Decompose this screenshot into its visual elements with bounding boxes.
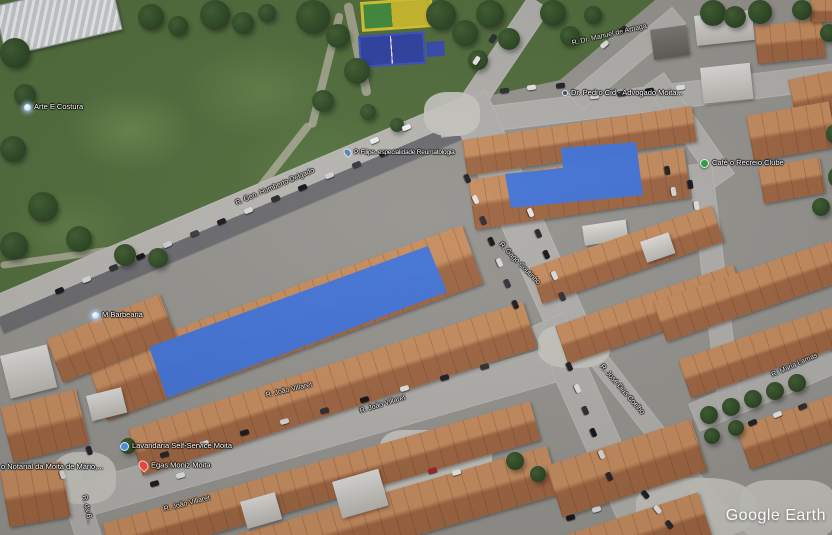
dot-navy-icon[interactable] [562, 90, 568, 96]
street-joao-villaret-3-text: R. João Villaret [163, 495, 211, 513]
place-notarial[interactable]: o Notarial da Moita de Mário,... [1, 462, 104, 471]
dot-blue-icon[interactable] [120, 442, 129, 451]
labels-layer: Arte E CosturaP. Filipe, especialidade R… [0, 0, 832, 535]
street-joao-villaret-1: R. João Villaret [265, 381, 313, 398]
street-gago-coutinho: R. Gago Coutinho [497, 241, 541, 286]
street-manuel-arriaga: R. Dr. Manuel de Arriaga [571, 23, 647, 47]
street-r-da-b: R. da B... [81, 495, 94, 525]
street-maria-lamas-text: R. Maria Lamas [771, 352, 819, 378]
dot-green-icon[interactable] [700, 159, 709, 168]
place-cafe-recreio-text: Café o Recreio Clube [712, 158, 784, 167]
place-notarial-text: o Notarial da Moita de Mário,... [1, 462, 104, 471]
place-egas-moniz[interactable]: Egas Moniz Moita [139, 460, 211, 471]
street-joao-villaret-3: R. João Villaret [163, 495, 211, 513]
pin-red-icon[interactable] [136, 458, 150, 472]
street-manuel-arriaga-text: R. Dr. Manuel de Arriaga [571, 23, 647, 47]
place-pedro-cid-text: Dr. Pedro Cid - Advogado Moita... [571, 88, 683, 97]
place-lavandaria-text: Lavandaria Self-Service Moita [132, 441, 232, 450]
street-humberto-delgado-text: R. Gen. Humberto Delgado [235, 167, 316, 207]
google-earth-logo: Google Earth [726, 507, 826, 525]
place-cafe-recreio[interactable]: Café o Recreio Clube [700, 158, 784, 168]
street-joao-villaret-2: R. João Villaret [359, 394, 406, 415]
place-lavandaria[interactable]: Lavandaria Self-Service Moita [120, 441, 232, 451]
place-arte-e-costura[interactable]: Arte E Costura [24, 102, 83, 111]
place-pedro-cid[interactable]: Dr. Pedro Cid - Advogado Moita... [562, 88, 683, 97]
dot-white-icon[interactable] [24, 104, 31, 111]
street-humberto-delgado: R. Gen. Humberto Delgado [235, 167, 316, 207]
place-filipe-reumatologia-text: P. Filipe, especialidade Reumatologia [354, 149, 455, 156]
dot-white-icon[interactable] [92, 312, 99, 319]
street-joao-villaret-1-text: R. João Villaret [265, 381, 313, 398]
place-arte-e-costura-text: Arte E Costura [34, 102, 83, 111]
street-maria-lamas: R. Maria Lamas [771, 352, 819, 378]
place-filipe-reumatologia[interactable]: P. Filipe, especialidade Reumatologia [344, 148, 455, 157]
earth-viewport[interactable]: Arte E CosturaP. Filipe, especialidade R… [0, 0, 832, 535]
street-jose-dias-coelho-text: R. José Dias Coelho [598, 363, 645, 416]
place-egas-moniz-text: Egas Moniz Moita [151, 460, 211, 469]
place-m-barbearia[interactable]: M Barbearia [92, 310, 143, 319]
street-r-da-b-text: R. da B... [81, 495, 94, 525]
pin-blue-icon[interactable] [342, 147, 353, 158]
street-gago-coutinho-text: R. Gago Coutinho [497, 241, 541, 286]
street-joao-villaret-2-text: R. João Villaret [359, 394, 406, 415]
place-m-barbearia-text: M Barbearia [102, 310, 143, 319]
street-jose-dias-coelho: R. José Dias Coelho [598, 363, 645, 416]
